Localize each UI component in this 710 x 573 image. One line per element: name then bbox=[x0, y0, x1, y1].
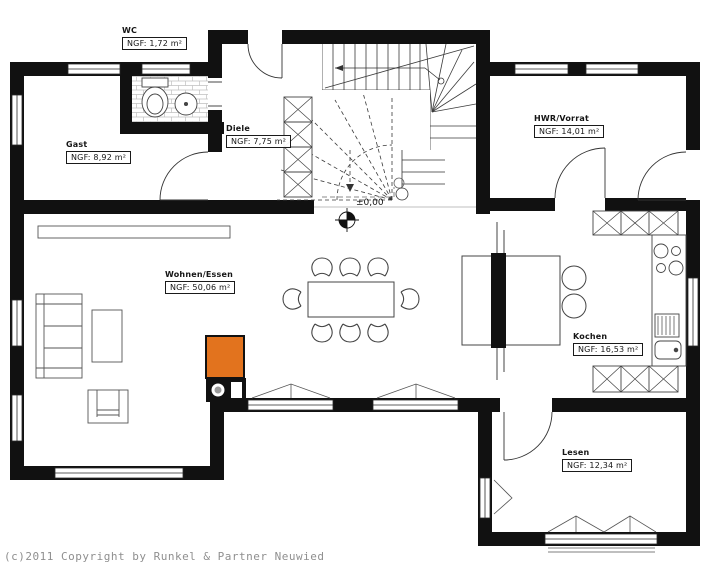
kitchen-cabinets-bottom bbox=[593, 366, 678, 392]
toilet-icon bbox=[142, 78, 168, 117]
room-area-badge: NGF: 7,75 m² bbox=[226, 135, 291, 148]
room-name: Lesen bbox=[562, 448, 632, 457]
sink-icon bbox=[655, 341, 681, 359]
armchair bbox=[88, 390, 128, 423]
room-name: HWR/Vorrat bbox=[534, 114, 604, 123]
kitchen-cabinets-top bbox=[593, 211, 678, 235]
living-furniture bbox=[36, 226, 230, 423]
terrace-door-1 bbox=[248, 400, 333, 410]
floor-plan-page: WC NGF: 1,72 m² Gast NGF: 8,92 m² Diele … bbox=[0, 0, 710, 573]
chair-icon bbox=[368, 324, 388, 342]
window-gast-left bbox=[12, 95, 22, 145]
window-wohnen-left-1 bbox=[12, 300, 22, 346]
stove-wood-box bbox=[231, 382, 242, 398]
window-lesen-left bbox=[480, 478, 490, 518]
lesen-door bbox=[500, 398, 552, 460]
sink-round-icon bbox=[175, 93, 197, 115]
chair-icon bbox=[283, 289, 301, 309]
wc-fixtures bbox=[132, 76, 208, 122]
room-area-badge: NGF: 16,53 m² bbox=[573, 343, 643, 356]
window-wohnen-left-2 bbox=[12, 395, 22, 441]
kitchen-counter bbox=[652, 235, 686, 366]
window-gast-top bbox=[68, 64, 120, 74]
room-name: Diele bbox=[226, 124, 291, 133]
coffee-table bbox=[92, 310, 122, 362]
window-kochen-right bbox=[688, 278, 698, 346]
reference-dashed-line bbox=[322, 187, 394, 197]
room-label-wc: WC NGF: 1,72 m² bbox=[122, 26, 187, 50]
stair-newel bbox=[396, 150, 445, 200]
dining-set bbox=[283, 258, 419, 342]
divider-chimney-block bbox=[491, 253, 506, 348]
hwr-exterior-door bbox=[638, 150, 700, 200]
hwr-interior-door bbox=[555, 148, 605, 211]
sideboard bbox=[38, 226, 230, 238]
room-area-badge: NGF: 1,72 m² bbox=[122, 37, 187, 50]
room-label-wohnen: Wohnen/Essen NGF: 50,06 m² bbox=[165, 270, 235, 294]
wood-stove bbox=[206, 336, 246, 402]
terrace-door-2 bbox=[373, 400, 458, 410]
room-name: Gast bbox=[66, 140, 131, 149]
gast-door bbox=[160, 152, 222, 200]
room-area-badge: NGF: 50,06 m² bbox=[165, 281, 235, 294]
chair-icon bbox=[312, 324, 332, 342]
window-wc-top bbox=[142, 64, 190, 74]
appliance-icon bbox=[655, 314, 679, 337]
stair-upper-flight bbox=[322, 44, 476, 150]
chair-icon bbox=[401, 289, 419, 309]
stool-icon bbox=[562, 266, 586, 290]
chair-icon bbox=[368, 258, 388, 276]
room-label-diele: Diele NGF: 7,75 m² bbox=[226, 124, 291, 148]
room-name: WC bbox=[122, 26, 187, 35]
chair-icon bbox=[312, 258, 332, 276]
front-door bbox=[248, 30, 282, 78]
window-wohnen-bottom bbox=[55, 468, 183, 478]
room-area-badge: NGF: 14,01 m² bbox=[534, 125, 604, 138]
window-hwr-top-1 bbox=[515, 64, 568, 74]
level-marker-label: ±0,00 bbox=[356, 198, 384, 208]
island-divider bbox=[462, 222, 586, 380]
room-name: Wohnen/Essen bbox=[165, 270, 235, 279]
room-area-badge: NGF: 8,92 m² bbox=[66, 151, 131, 164]
window-lesen-bottom bbox=[545, 534, 657, 544]
room-name: Kochen bbox=[573, 332, 643, 341]
room-label-hwr: HWR/Vorrat NGF: 14,01 m² bbox=[534, 114, 604, 138]
floor-plan-drawing bbox=[0, 0, 710, 573]
dining-table bbox=[308, 282, 394, 317]
room-label-gast: Gast NGF: 8,92 m² bbox=[66, 140, 131, 164]
chair-icon bbox=[340, 324, 360, 342]
room-area-badge: NGF: 12,34 m² bbox=[562, 459, 632, 472]
copyright-text: (c)2011 Copyright by Runkel & Partner Ne… bbox=[4, 550, 325, 563]
chair-icon bbox=[340, 258, 360, 276]
stair-down-arrowhead bbox=[346, 184, 354, 192]
stair-direction-arrow bbox=[335, 65, 444, 84]
window-hwr-top-2 bbox=[586, 64, 638, 74]
stool-icon bbox=[562, 294, 586, 318]
wc-door bbox=[208, 78, 222, 110]
room-label-kochen: Kochen NGF: 16,53 m² bbox=[573, 332, 643, 356]
level-marker bbox=[335, 208, 359, 232]
stove-body bbox=[206, 336, 244, 378]
room-label-lesen: Lesen NGF: 12,34 m² bbox=[562, 448, 632, 472]
sofa bbox=[36, 294, 82, 378]
electrical-symbol bbox=[394, 178, 404, 188]
